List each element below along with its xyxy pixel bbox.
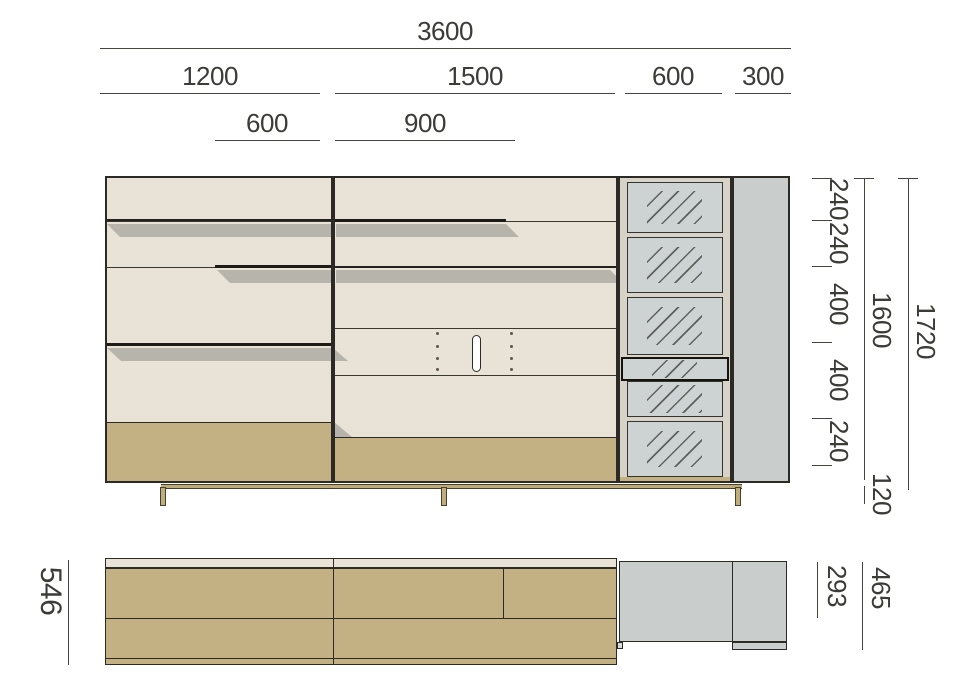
leg-left xyxy=(160,487,166,506)
dim-label-section-1500: 1500 xyxy=(430,61,520,91)
glass-drawer-front xyxy=(621,357,729,381)
dim-label-section-600: 600 xyxy=(628,61,718,91)
plinth-rail xyxy=(161,484,742,489)
plan-divider-900 xyxy=(503,568,504,618)
plan-wall-panel-strip xyxy=(105,558,617,568)
dim-label-1720: 1720 xyxy=(909,286,943,376)
glass-hatch xyxy=(652,360,697,378)
section-outline-middle-1500 xyxy=(333,176,618,483)
section-outline-left-1200 xyxy=(105,176,333,483)
dim-label-section-300: 300 xyxy=(718,61,808,91)
dim-line-total-width xyxy=(100,48,791,49)
dim-label-shelf-900: 900 xyxy=(380,108,470,138)
dim-label-section-1200: 1200 xyxy=(165,61,255,91)
dim-line-546 xyxy=(68,560,69,665)
dim-line-section-300 xyxy=(735,93,791,94)
dim-line-section-1200 xyxy=(100,93,320,94)
glass-door-panel-2 xyxy=(627,237,723,293)
glass-door-panel-5 xyxy=(627,421,723,477)
leg-middle xyxy=(441,487,447,506)
plan-divider-600-300 xyxy=(732,561,733,642)
dim-label-546: 546 xyxy=(33,546,67,636)
glass-hatch xyxy=(647,385,702,414)
dim-line-section-1500 xyxy=(335,93,615,94)
glass-door-panel-3 xyxy=(627,297,723,355)
glass-door-panel-1 xyxy=(627,182,723,233)
dim-label-240-3: 240 xyxy=(822,396,856,486)
plan-side-notch xyxy=(617,642,623,649)
dim-line-shelf-900 xyxy=(335,140,515,141)
plan-base-front-edge xyxy=(105,658,617,659)
dim-label-1600: 1600 xyxy=(865,275,899,365)
dim-line-293 xyxy=(817,562,818,618)
plan-divider-1200 xyxy=(333,558,334,665)
dim-label-total-width: 3600 xyxy=(400,16,490,46)
plan-base-cabinet xyxy=(105,568,617,665)
glass-hatch xyxy=(647,307,702,345)
furniture-technical-drawing: 3600 1200 1500 600 300 600 900 xyxy=(0,0,970,696)
dim-label-465: 465 xyxy=(864,543,898,633)
dim-line-shelf-600 xyxy=(215,140,320,141)
leg-right xyxy=(735,487,741,506)
dim-line-section-600 xyxy=(625,93,722,94)
dim-label-120: 120 xyxy=(865,449,899,539)
section-outline-side-300 xyxy=(732,176,790,483)
glass-hatch xyxy=(647,191,702,224)
plan-glass-and-side-section xyxy=(619,561,787,642)
dim-label-293: 293 xyxy=(820,541,854,631)
glass-door-panel-4 xyxy=(627,381,723,417)
glass-hatch xyxy=(647,247,702,284)
dim-label-shelf-600: 600 xyxy=(222,108,312,138)
plan-base-divider-h xyxy=(105,618,617,619)
plan-side-panel-step xyxy=(732,642,787,650)
glass-hatch xyxy=(647,431,702,468)
